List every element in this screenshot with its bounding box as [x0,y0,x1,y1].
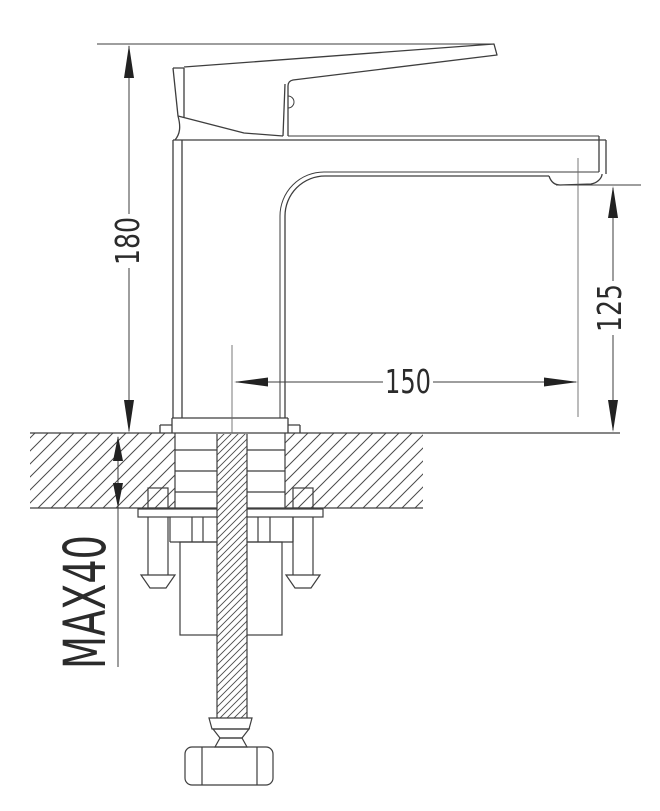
handle-base-curve [175,116,180,140]
locknut [185,747,273,785]
threaded-rod [217,434,247,718]
dimension-label-150: 150 [385,362,431,401]
mounting-flange [160,418,300,433]
fixing-screw-right-tip [286,575,320,588]
handle-skirt [178,84,285,136]
arrow-left-icon [234,378,268,387]
fixing-screw-right-shaft [293,517,313,575]
arrow-right-icon [544,378,578,387]
countertop-hatch-left [30,433,175,508]
faucet-body-left [173,140,182,418]
arrow-up-icon [124,45,134,78]
faucet-outline [160,44,606,433]
faucet-installation-drawing: 180 125 150 MAX40 [0,0,660,811]
spout-end-cap [599,136,606,174]
rod-cone-upper [213,729,249,738]
dimension-overall-height: 180 [97,44,494,433]
dimension-label-125: 125 [590,284,629,332]
countertop-hatch-right [285,433,423,508]
arrow-down-icon [608,400,618,432]
dimension-label-max40: MAX40 [51,535,119,669]
handle-base [173,68,184,117]
rod-cone-lower [215,738,247,747]
arrow-down-icon [124,400,134,433]
handle-lever [184,44,497,136]
locknut-facets [202,747,257,785]
arrow-up-icon [608,186,618,218]
dimension-spout-height: 125 [556,185,641,432]
rod-end-assembly [185,718,273,785]
handle-pivot-detail [288,96,294,108]
technical-drawing-sheet: 180 125 150 MAX40 [0,0,660,811]
fixing-screw-left-shaft [148,517,168,575]
fixing-screw-left-tip [141,575,175,588]
rod-washer [209,718,252,729]
aerator [549,174,602,185]
dimension-label-180: 180 [108,217,147,265]
